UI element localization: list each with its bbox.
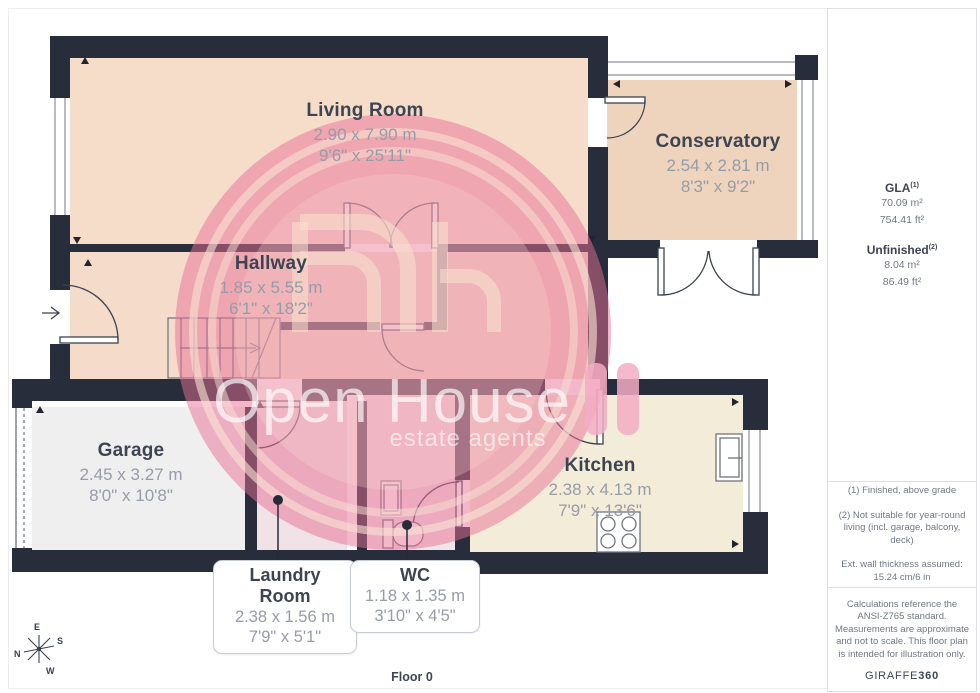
room-dim-metric: 2.54 x 2.81 m bbox=[656, 155, 781, 176]
unfinished-heading: Unfinished(2) bbox=[828, 243, 976, 257]
brand-name: GIRAFFE bbox=[865, 670, 918, 682]
room-label-conservatory: Conservatory 2.54 x 2.81 m 8'3" x 9'2" bbox=[656, 131, 781, 197]
compass-n: N bbox=[14, 649, 21, 659]
room-name: Hallway bbox=[219, 253, 322, 275]
callout-laundry-room: Laundry Room 2.38 x 1.56 m 7'9" x 5'1" bbox=[213, 560, 357, 654]
giraffe360-logo: GIRAFFE360 bbox=[865, 670, 939, 683]
area-summary-section: GLA(1) 70.09 m² 754.41 ft² Unfinished(2)… bbox=[828, 9, 976, 481]
room-dim-imperial: 8'3" x 9'2" bbox=[656, 176, 781, 197]
disclaimer-text: Calculations reference the ANSI-Z765 sta… bbox=[834, 599, 970, 662]
room-dim-imperial: 9'6" x 25'11" bbox=[306, 145, 423, 166]
floorplan-page: Open House estate agents Living Room 2.9… bbox=[0, 0, 980, 693]
callout-wc: WC 1.18 x 1.35 m 3'10" x 4'5" bbox=[350, 560, 480, 633]
room-dim-imperial: 6'1" x 18'2" bbox=[219, 298, 322, 319]
unfinished-footnote-ref: (2) bbox=[929, 244, 938, 251]
room-dim-metric: 2.90 x 7.90 m bbox=[306, 124, 423, 145]
room-name: Conservatory bbox=[656, 131, 781, 153]
footnote-3: Ext. wall thickness assumed: 15.24 cm/6 … bbox=[834, 559, 970, 584]
garage-door bbox=[12, 408, 32, 548]
room-dim-imperial: 7'9" x 13'6" bbox=[548, 500, 651, 521]
watermark-subtitle: estate agents bbox=[389, 425, 546, 452]
info-sidebar: GLA(1) 70.09 m² 754.41 ft² Unfinished(2)… bbox=[827, 8, 977, 692]
footnotes-section: (1) Finished, above grade (2) Not suitab… bbox=[828, 481, 976, 587]
gla-heading: GLA(1) bbox=[828, 181, 976, 195]
room-name: Laundry Room bbox=[222, 565, 348, 607]
room-name: Living Room bbox=[306, 100, 423, 122]
room-dim-metric: 1.18 x 1.35 m bbox=[359, 586, 471, 606]
compass-icon: E S N W bbox=[8, 616, 70, 680]
floor-label: Floor 0 bbox=[391, 670, 433, 684]
room-dim-imperial: 3'10" x 4'5" bbox=[359, 606, 471, 626]
room-name: WC bbox=[359, 565, 471, 586]
room-name: Garage bbox=[79, 440, 182, 462]
room-label-kitchen: Kitchen 2.38 x 4.13 m 7'9" x 13'6" bbox=[548, 455, 651, 521]
unfinished-label: Unfinished bbox=[867, 243, 929, 257]
gla-label: GLA bbox=[885, 181, 910, 195]
room-dim-imperial: 8'0" x 10'8" bbox=[79, 485, 182, 506]
room-dim-metric: 2.45 x 3.27 m bbox=[79, 464, 182, 485]
room-label-hallway: Hallway 1.85 x 5.55 m 6'1" x 18'2" bbox=[219, 253, 322, 319]
room-dim-metric: 2.38 x 4.13 m bbox=[548, 479, 651, 500]
room-name: Kitchen bbox=[548, 455, 651, 477]
footnote-1: (1) Finished, above grade bbox=[848, 485, 956, 498]
compass-s: S bbox=[57, 636, 63, 646]
footnote-2: (2) Not suitable for year-round living (… bbox=[834, 510, 970, 548]
gla-footnote-ref: (1) bbox=[910, 182, 919, 189]
gla-ft2: 754.41 ft² bbox=[828, 212, 976, 229]
brand-suffix: 360 bbox=[918, 670, 939, 682]
room-dim-imperial: 7'9" x 5'1" bbox=[222, 627, 348, 647]
unfinished-ft2: 86.49 ft² bbox=[828, 274, 976, 291]
room-label-living-room: Living Room 2.90 x 7.90 m 9'6" x 25'11" bbox=[306, 100, 423, 166]
gla-m2: 70.09 m² bbox=[828, 195, 976, 212]
room-dim-metric: 1.85 x 5.55 m bbox=[219, 277, 322, 298]
room-label-garage: Garage 2.45 x 3.27 m 8'0" x 10'8" bbox=[79, 440, 182, 506]
compass-e: E bbox=[34, 622, 40, 632]
unfinished-m2: 8.04 m² bbox=[828, 257, 976, 274]
disclaimer-section: Calculations reference the ANSI-Z765 sta… bbox=[828, 587, 976, 693]
room-dim-metric: 2.38 x 1.56 m bbox=[222, 607, 348, 627]
compass-w: W bbox=[46, 666, 55, 676]
